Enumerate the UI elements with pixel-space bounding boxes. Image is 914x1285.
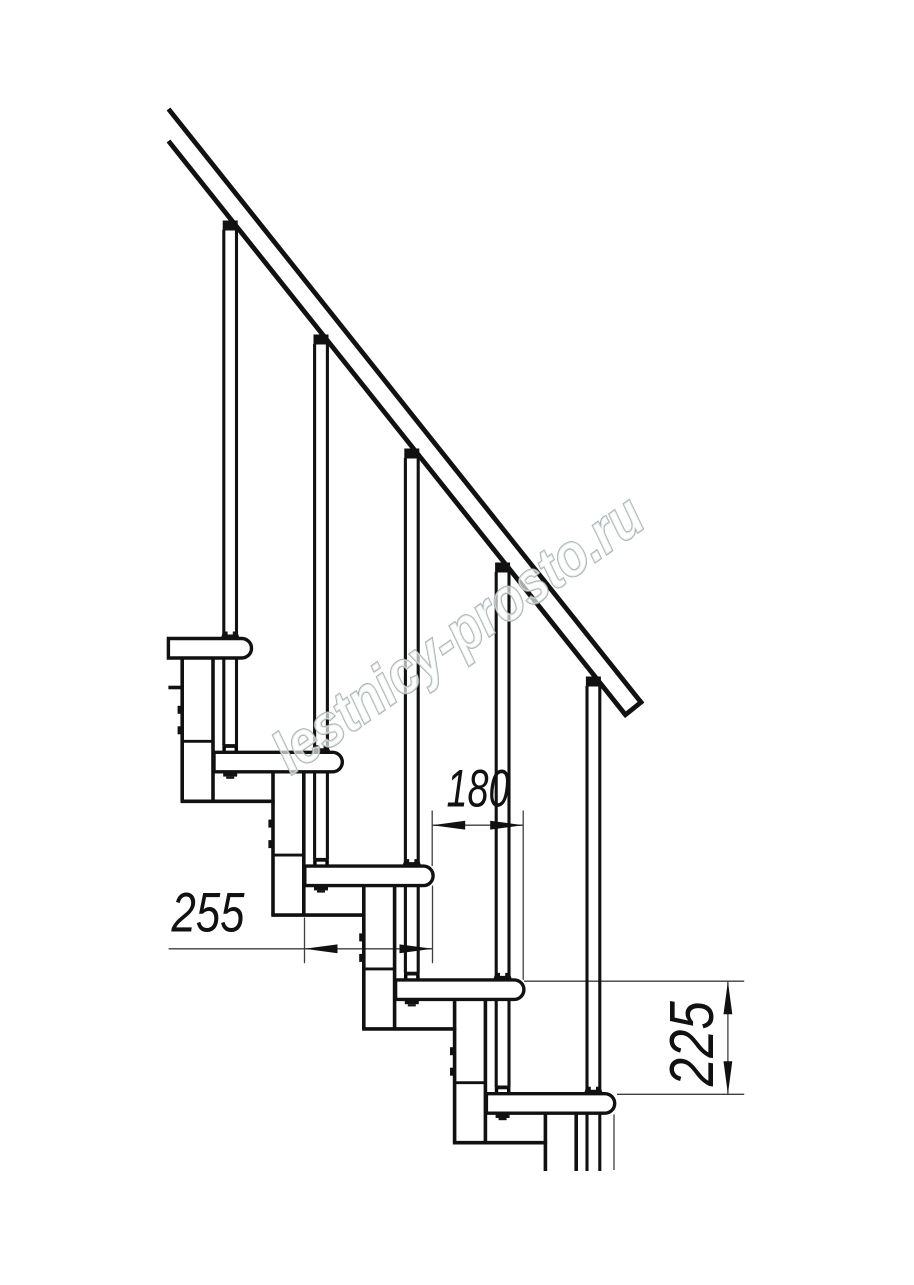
svg-text:255: 255 — [171, 881, 245, 944]
svg-text:225: 225 — [658, 1001, 727, 1087]
svg-text:180: 180 — [447, 760, 510, 819]
